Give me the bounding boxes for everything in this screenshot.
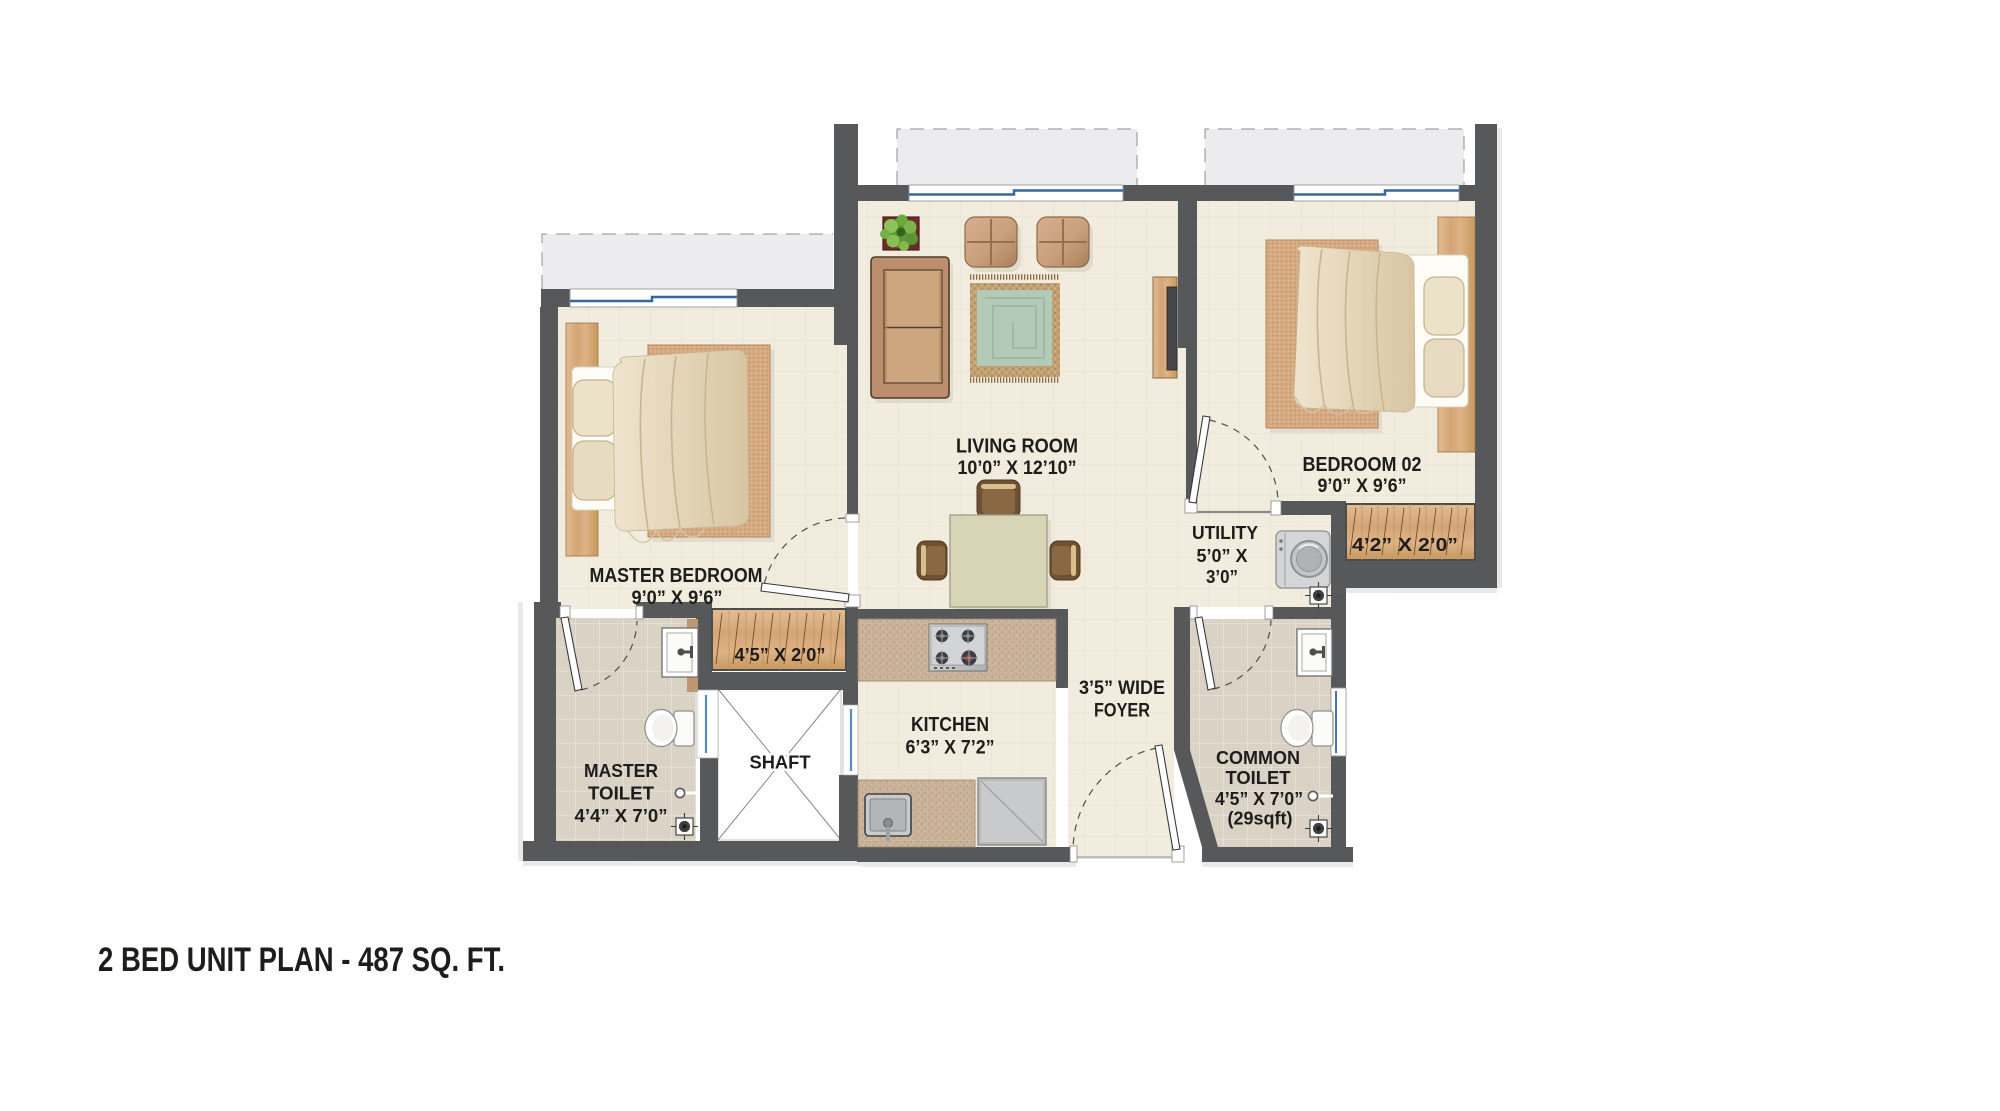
svg-text:6’3” X 7’2”: 6’3” X 7’2” bbox=[906, 737, 995, 759]
svg-text:3’5” WIDE: 3’5” WIDE bbox=[1079, 678, 1165, 699]
svg-text:(29sqft): (29sqft) bbox=[1228, 808, 1293, 829]
svg-text:TOILET: TOILET bbox=[588, 783, 655, 804]
svg-text:MASTER: MASTER bbox=[584, 760, 658, 781]
svg-text:3’0”: 3’0” bbox=[1206, 566, 1238, 587]
svg-text:COMMON: COMMON bbox=[1216, 747, 1300, 768]
svg-text:10’0” X 12’10”: 10’0” X 12’10” bbox=[958, 457, 1077, 479]
svg-text:KITCHEN: KITCHEN bbox=[911, 714, 989, 736]
svg-text:4’4” X 7’0”: 4’4” X 7’0” bbox=[575, 805, 668, 826]
svg-text:9’0” X 9’6”: 9’0” X 9’6” bbox=[632, 587, 723, 609]
svg-text:UTILITY: UTILITY bbox=[1192, 522, 1259, 543]
svg-text:TOILET: TOILET bbox=[1226, 767, 1292, 788]
svg-text:MASTER BEDROOM: MASTER BEDROOM bbox=[590, 565, 763, 587]
svg-text:2 BED UNIT PLAN - 487 SQ. FT.: 2 BED UNIT PLAN - 487 SQ. FT. bbox=[98, 941, 505, 979]
svg-text:BEDROOM 02: BEDROOM 02 bbox=[1303, 454, 1422, 476]
svg-text:9’0” X 9’6”: 9’0” X 9’6” bbox=[1318, 475, 1407, 497]
svg-text:4’5” X 7’0”: 4’5” X 7’0” bbox=[1215, 788, 1303, 809]
svg-text:4’2” X 2’0”: 4’2” X 2’0” bbox=[1352, 535, 1458, 555]
svg-text:FOYER: FOYER bbox=[1094, 701, 1150, 722]
svg-text:LIVING ROOM: LIVING ROOM bbox=[956, 436, 1078, 458]
svg-text:SHAFT: SHAFT bbox=[750, 753, 811, 773]
svg-text:5’0” X: 5’0” X bbox=[1197, 545, 1249, 566]
svg-text:4’5” X 2’0”: 4’5” X 2’0” bbox=[735, 645, 826, 665]
